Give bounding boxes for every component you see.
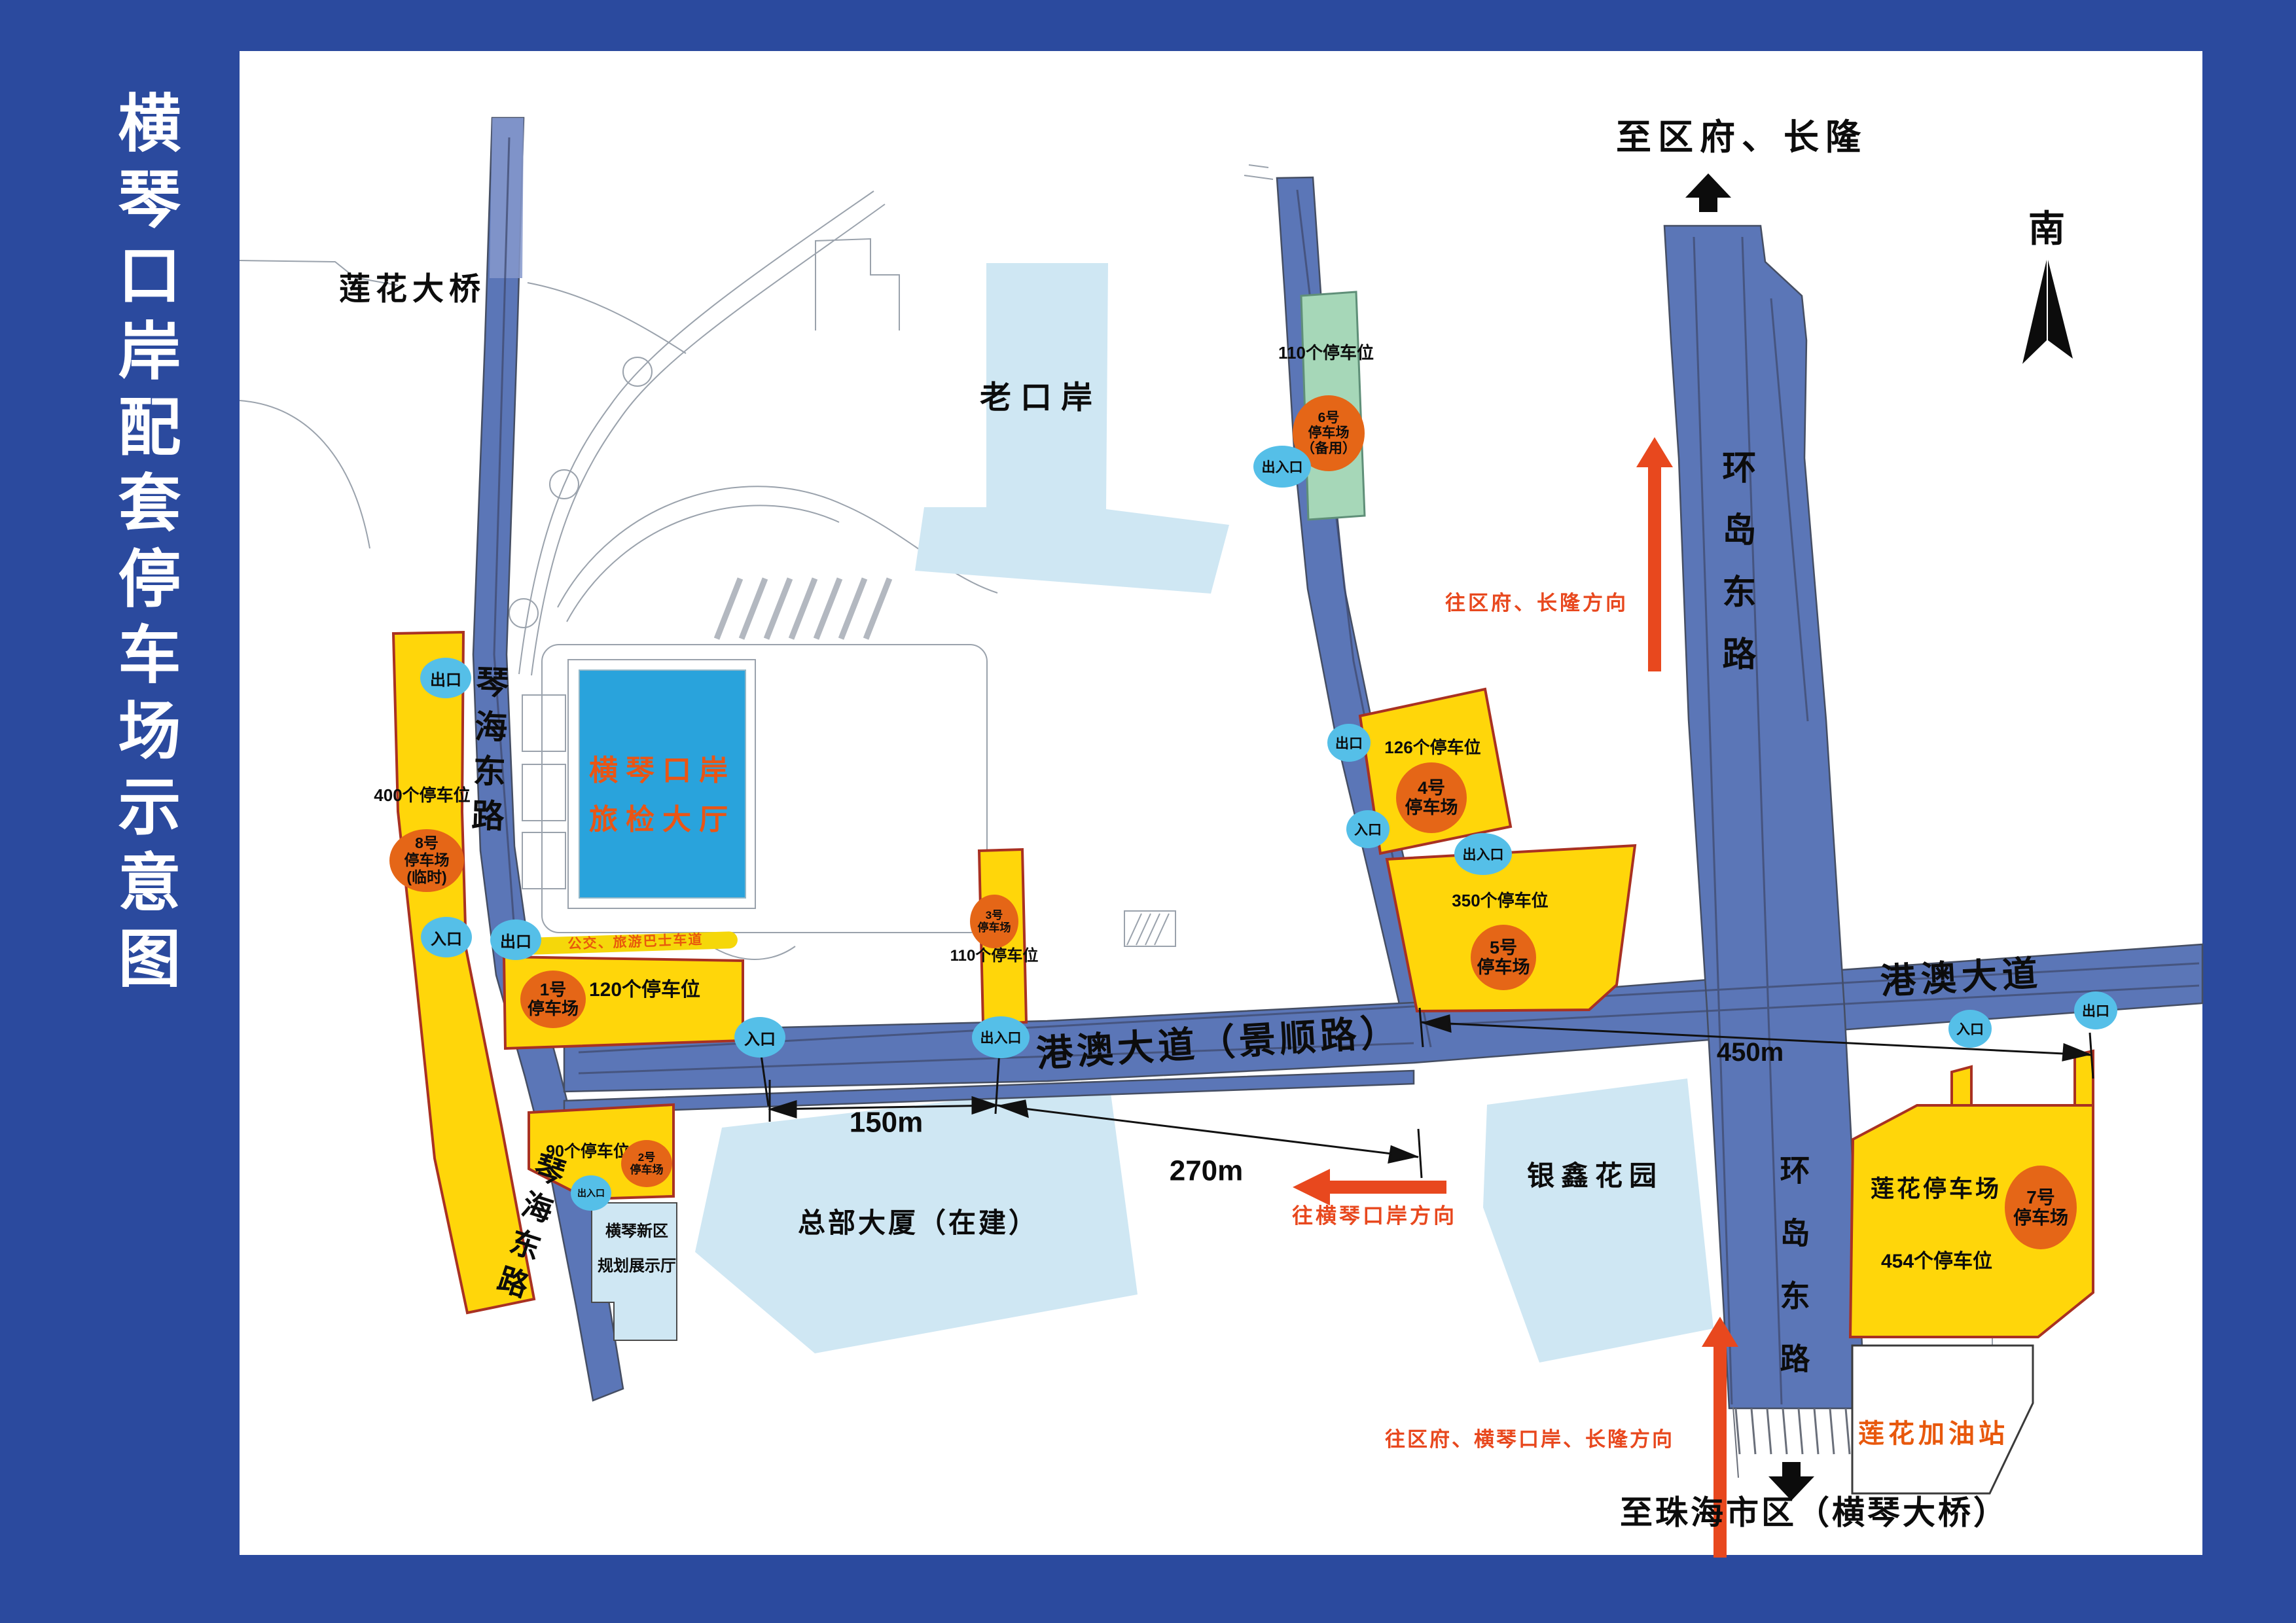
lot-6-access-gate: 出入口 (1253, 446, 1311, 488)
lot-2-access-gate: 出入口 (571, 1175, 611, 1211)
lot-8-exit-gate: 出口 (420, 658, 471, 698)
lot-3-capacity: 110个停车位 (950, 947, 1039, 965)
lot-7-exit-gate: 出口 (2074, 991, 2117, 1029)
lot-6-capacity: 110个停车位 (1278, 344, 1374, 363)
hq-tower-label: 总部大厦（在建） (798, 1207, 1039, 1239)
lot-2-badge: 2号 停车场 (621, 1140, 672, 1187)
lot-4-capacity: 126个停车位 (1384, 738, 1480, 758)
to-zhuhai-label: 至珠海市区（横琴大桥） (1620, 1494, 2009, 1532)
lot-3-badge: 3号 停车场 (970, 895, 1018, 948)
exhibition-hall-label: 横琴新区 规划展示厅 (598, 1215, 676, 1284)
dim-270m: 270m (1170, 1155, 1244, 1188)
gangao-label: 港澳大道 (1880, 954, 2044, 1003)
lot-3-access-gate: 出入口 (972, 1016, 1030, 1058)
lot-7-driveway-out (2075, 1051, 2093, 1106)
dim-450m: 450m (1717, 1037, 1784, 1067)
dir-qufu-hengqin-changlong-label: 往区府、横琴口岸、长隆方向 (1385, 1428, 1674, 1452)
lot-1-entrance-gate: 入口 (734, 1017, 785, 1058)
lot-4-exit-gate: 出口 (1327, 724, 1371, 762)
lot-1-badge: 1号 停车场 (520, 971, 586, 1028)
lot-5-capacity: 350个停车位 (1452, 891, 1548, 911)
yinxin-garden-label: 银鑫花园 (1527, 1160, 1663, 1192)
lianhua-lot-label: 莲花停车场 (1871, 1175, 2001, 1202)
huandao-east-label-lower: 环岛东路 (1776, 1154, 1810, 1406)
lot-7-entrance-gate: 入口 (1948, 1010, 1992, 1048)
lot-8-capacity: 400个停车位 (374, 786, 470, 806)
dim-150m: 150m (850, 1107, 924, 1140)
lot-2-capacity: 90个停车位 (546, 1143, 630, 1162)
lot-4-entrance-gate: 入口 (1346, 810, 1390, 848)
lot-8-entrance-gate: 入口 (421, 917, 472, 957)
dir-hengqin-port-label: 往横琴口岸方向 (1292, 1204, 1457, 1228)
inspection-hall-label: 横琴口岸 旅检大厅 (589, 747, 736, 845)
poster: 横琴口岸配套停车场示意图 莲花大桥 至区府、长隆 南 老口岸 至珠海市区（横琴大… (0, 0, 2296, 1623)
lot-4-badge: 4号 停车场 (1396, 762, 1467, 833)
lot-7-driveway-in (1952, 1067, 1971, 1106)
lot-8-badge: 8号 停车场 (临时) (389, 829, 464, 892)
dir-qufu-changlong-label: 往区府、长隆方向 (1445, 592, 1628, 615)
lot-7-capacity: 454个停车位 (1881, 1251, 1992, 1274)
gas-station-label: 莲花加油站 (1858, 1419, 2009, 1449)
lot-7-badge: 7号 停车场 (2005, 1166, 2077, 1249)
to-qufu-changlong-label: 至区府、长隆 (1616, 117, 1867, 158)
lot-1-capacity: 120个停车位 (589, 979, 700, 1002)
poster-title: 横琴口岸配套停车场示意图 (98, 90, 189, 1001)
map-graphics (0, 0, 2296, 1623)
compass-south-label: 南 (2028, 208, 2065, 250)
lot-1-exit-gate: 出口 (490, 919, 541, 960)
lianhua-bridge-label: 莲花大桥 (339, 271, 486, 307)
lot-5-badge: 5号 停车场 (1471, 925, 1536, 990)
qinhai-east-label-upper: 琴海东路 (465, 664, 509, 844)
huandao-east-label-upper: 环岛东路 (1715, 450, 1755, 698)
lot-5-access-gate: 出入口 (1454, 833, 1512, 875)
old-port-label: 老口岸 (980, 380, 1102, 416)
